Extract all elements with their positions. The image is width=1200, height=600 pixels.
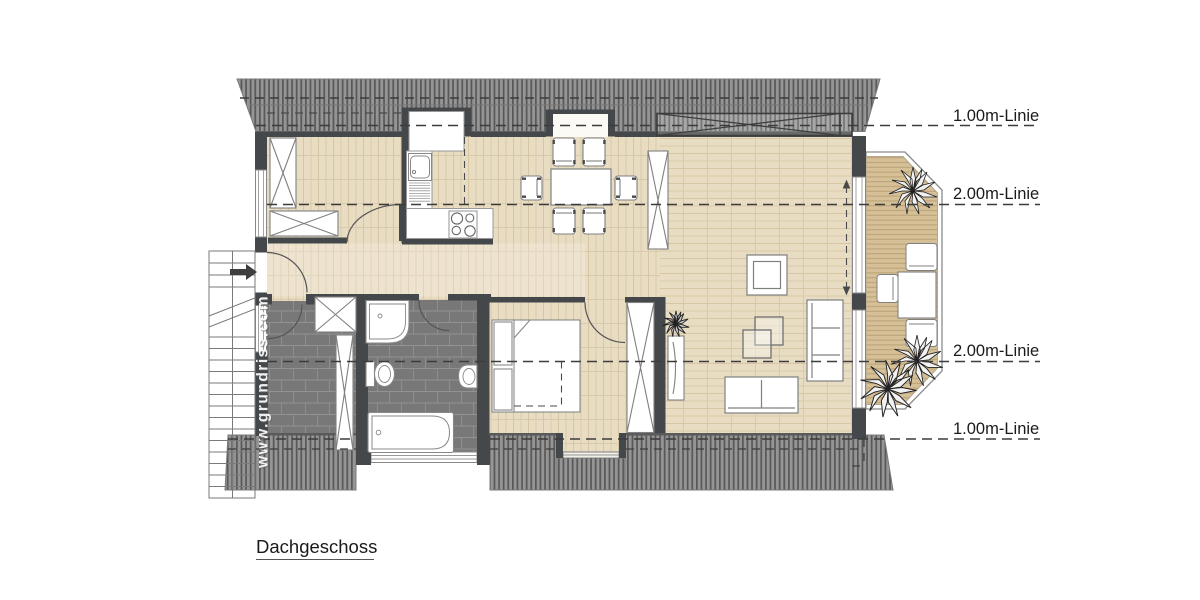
svg-text:2.00m-Linie: 2.00m-Linie <box>953 342 1039 360</box>
svg-text:1.00m-Linie: 1.00m-Linie <box>953 420 1039 438</box>
svg-text:1.00m-Linie: 1.00m-Linie <box>953 107 1039 125</box>
svg-text:Dachgeschoss: Dachgeschoss <box>256 536 377 557</box>
svg-text:www.grundriss.com: www.grundriss.com <box>255 295 272 469</box>
svg-text:2.00m-Linie: 2.00m-Linie <box>953 185 1039 203</box>
